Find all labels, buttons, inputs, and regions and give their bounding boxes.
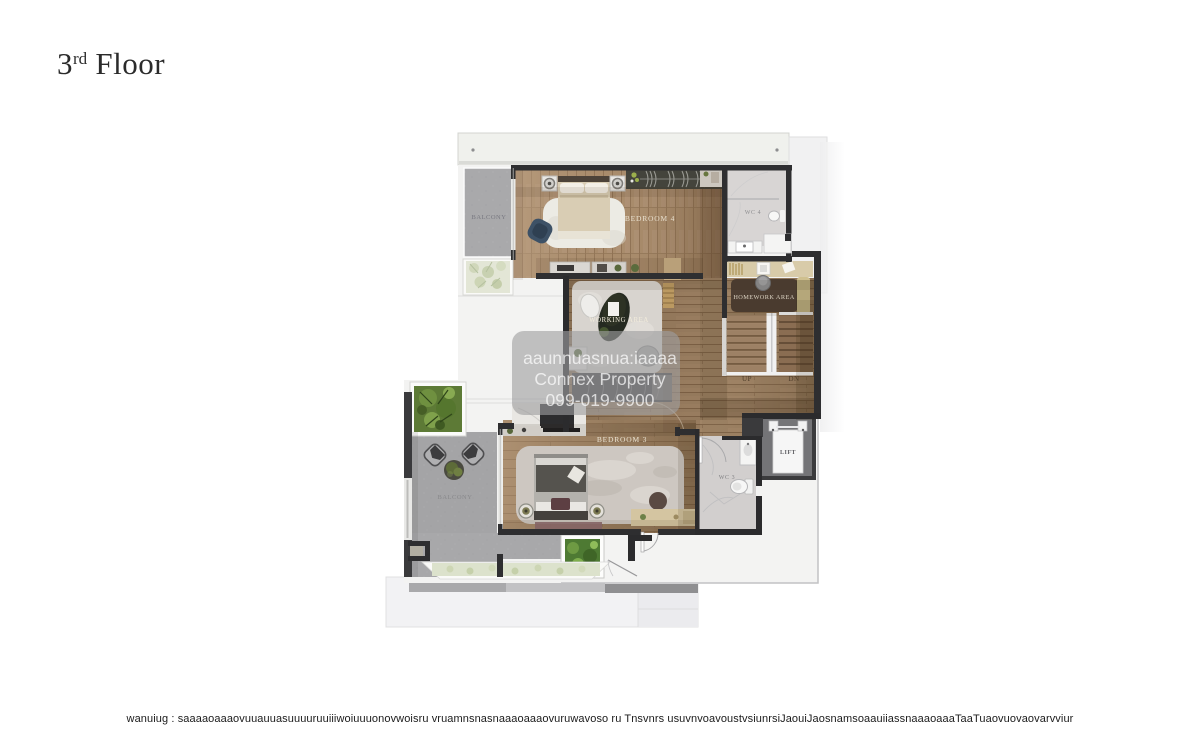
svg-text:BALCONY: BALCONY xyxy=(438,494,473,501)
svg-text:099-019-9900: 099-019-9900 xyxy=(546,390,655,410)
svg-text:BEDROOM 3: BEDROOM 3 xyxy=(597,435,647,444)
svg-text:BEDROOM 4: BEDROOM 4 xyxy=(625,214,675,223)
svg-text:LIFT: LIFT xyxy=(780,450,796,456)
svg-text:Connex Property: Connex Property xyxy=(534,369,666,389)
svg-text:DN: DN xyxy=(788,375,799,383)
svg-text:WC 4: WC 4 xyxy=(745,210,762,216)
svg-text:WORKING AREA: WORKING AREA xyxy=(589,317,649,324)
svg-text:BALCONY: BALCONY xyxy=(472,214,507,221)
svg-text:WC 3: WC 3 xyxy=(719,475,736,481)
svg-text:HOMEWORK AREA: HOMEWORK AREA xyxy=(733,294,794,301)
svg-text:aaunnuasnua:iaaaa: aaunnuasnua:iaaaa xyxy=(523,348,677,368)
svg-text:UP: UP xyxy=(742,375,752,383)
